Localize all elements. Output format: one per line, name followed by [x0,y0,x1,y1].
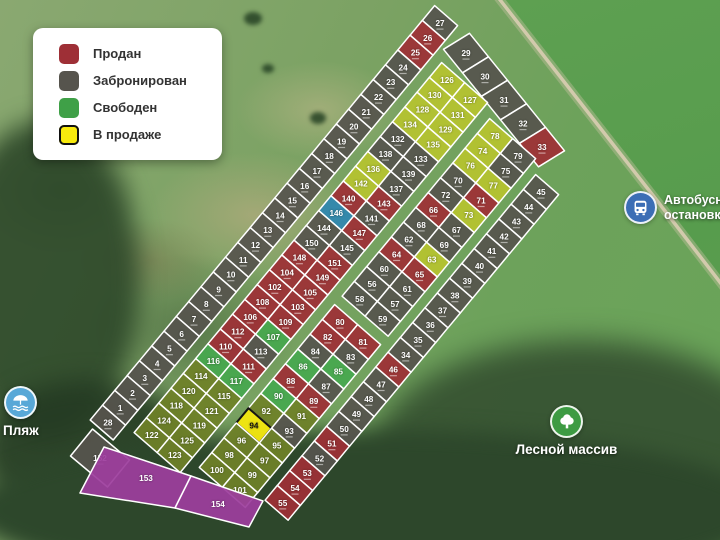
svg-text:44: 44 [524,203,534,212]
sale-swatch [59,125,79,145]
svg-text:47: 47 [377,380,387,389]
svg-text:80: 80 [335,318,345,327]
svg-text:102: 102 [268,283,282,292]
svg-text:83: 83 [346,353,356,362]
forest-label: Лесной массив [504,442,629,457]
svg-text:46: 46 [389,366,399,375]
svg-text:145: 145 [340,244,354,253]
svg-text:112: 112 [231,328,245,337]
svg-text:113: 113 [254,348,268,357]
svg-text:142: 142 [354,180,368,189]
svg-text:49: 49 [352,410,362,419]
svg-text:154: 154 [211,500,225,509]
bus-stop-marker: Автобусная остановка [624,191,720,224]
legend-label: Свободен [93,100,157,115]
svg-text:21: 21 [362,108,372,117]
svg-text:118: 118 [170,402,184,411]
svg-text:91: 91 [297,412,307,421]
beach-umbrella-icon [4,386,37,419]
svg-text:19: 19 [337,137,347,146]
svg-text:16: 16 [300,182,310,191]
svg-text:93: 93 [285,427,295,436]
svg-text:150: 150 [305,239,319,248]
svg-text:7: 7 [192,315,197,324]
svg-text:26: 26 [423,34,433,43]
svg-text:30: 30 [480,73,490,82]
svg-text:140: 140 [342,194,356,203]
svg-text:41: 41 [487,247,497,256]
svg-text:87: 87 [322,382,332,391]
svg-text:100: 100 [210,466,224,475]
svg-text:29: 29 [461,49,471,58]
svg-text:36: 36 [426,321,436,330]
svg-text:90: 90 [274,392,284,401]
svg-text:58: 58 [355,295,365,304]
svg-text:22: 22 [374,93,384,102]
legend-row-free: Свободен [59,94,222,121]
svg-text:32: 32 [518,120,528,129]
svg-text:85: 85 [334,368,344,377]
svg-text:122: 122 [145,431,159,440]
svg-text:3: 3 [143,374,148,383]
svg-text:9: 9 [216,285,221,294]
svg-text:94: 94 [249,422,259,431]
svg-text:33: 33 [537,143,547,152]
svg-text:106: 106 [243,313,257,322]
svg-text:45: 45 [536,188,546,197]
svg-text:104: 104 [280,268,294,277]
svg-text:69: 69 [440,241,450,250]
svg-text:96: 96 [237,436,247,445]
svg-text:99: 99 [248,471,258,480]
svg-text:84: 84 [311,348,321,357]
svg-text:125: 125 [180,436,194,445]
svg-text:123: 123 [168,451,182,460]
svg-text:105: 105 [303,288,317,297]
svg-text:146: 146 [329,209,343,218]
svg-text:79: 79 [513,152,523,161]
svg-text:38: 38 [450,292,460,301]
svg-text:120: 120 [182,387,196,396]
reserved-swatch [59,71,79,91]
svg-text:50: 50 [340,425,350,434]
legend-card: Продан Забронирован Свободен В продаже [33,28,222,160]
svg-text:141: 141 [365,214,379,223]
svg-text:39: 39 [463,277,473,286]
forest-marker: Лесной массив [550,405,583,457]
svg-text:134: 134 [403,120,417,129]
svg-text:132: 132 [391,135,405,144]
svg-text:86: 86 [299,362,309,371]
svg-text:14: 14 [276,211,286,220]
svg-text:147: 147 [352,229,366,238]
svg-text:138: 138 [379,150,393,159]
svg-text:42: 42 [500,232,510,241]
svg-text:40: 40 [475,262,485,271]
svg-text:51: 51 [327,440,337,449]
legend-label: Продан [93,46,141,61]
svg-text:60: 60 [380,265,390,274]
bus-icon [624,191,657,224]
svg-text:17: 17 [312,167,322,176]
aerial-plot-map: 2726252423222120191817161514131211109876… [0,0,720,540]
svg-text:55: 55 [278,499,288,508]
svg-text:110: 110 [219,342,233,351]
svg-text:76: 76 [466,162,476,171]
svg-text:43: 43 [512,218,522,227]
svg-text:64: 64 [392,250,402,259]
svg-text:54: 54 [290,484,300,493]
svg-text:5: 5 [167,345,172,354]
svg-text:149: 149 [316,274,330,283]
svg-text:74: 74 [478,147,488,156]
svg-text:62: 62 [404,236,414,245]
svg-text:148: 148 [293,254,307,263]
svg-text:119: 119 [193,422,207,431]
svg-text:136: 136 [366,165,380,174]
bus-stop-label-line2: остановка [664,208,720,223]
svg-text:72: 72 [441,191,451,200]
svg-text:108: 108 [256,298,270,307]
svg-text:59: 59 [378,315,388,324]
svg-text:144: 144 [317,224,331,233]
svg-text:77: 77 [489,182,499,191]
svg-text:35: 35 [413,336,423,345]
svg-text:98: 98 [225,451,235,460]
svg-text:57: 57 [390,300,400,309]
legend-row-sale: В продаже [59,121,222,148]
svg-text:65: 65 [415,270,425,279]
svg-text:67: 67 [452,226,462,235]
svg-text:115: 115 [217,392,231,401]
svg-text:81: 81 [358,338,368,347]
svg-text:137: 137 [389,185,403,194]
svg-text:103: 103 [291,303,305,312]
svg-text:11: 11 [239,256,248,265]
svg-text:143: 143 [377,200,391,209]
svg-text:109: 109 [279,318,293,327]
svg-text:56: 56 [367,280,377,289]
svg-text:66: 66 [429,206,439,215]
svg-text:25: 25 [411,49,421,58]
svg-text:97: 97 [260,456,270,465]
svg-text:34: 34 [401,351,411,360]
svg-text:92: 92 [262,407,272,416]
svg-text:28: 28 [103,419,113,428]
svg-text:151: 151 [328,259,342,268]
svg-text:130: 130 [428,91,442,100]
svg-text:20: 20 [349,123,359,132]
svg-text:89: 89 [309,397,319,406]
svg-text:135: 135 [426,140,440,149]
svg-text:82: 82 [323,333,333,342]
svg-text:153: 153 [139,474,153,483]
svg-text:117: 117 [230,377,244,386]
svg-text:53: 53 [303,469,313,478]
svg-text:126: 126 [440,76,454,85]
tree-icon [550,405,583,438]
bus-stop-label-line1: Автобусная [664,193,720,208]
svg-text:12: 12 [251,241,261,250]
svg-text:31: 31 [499,96,509,105]
svg-text:127: 127 [463,96,477,105]
svg-text:6: 6 [179,330,184,339]
svg-text:27: 27 [435,19,445,28]
svg-text:78: 78 [490,132,500,141]
svg-text:107: 107 [266,333,280,342]
svg-text:8: 8 [204,300,209,309]
svg-text:111: 111 [242,362,255,371]
svg-text:75: 75 [501,167,511,176]
svg-text:71: 71 [477,196,487,205]
legend-row-reserved: Забронирован [59,67,222,94]
svg-text:139: 139 [402,170,416,179]
free-swatch [59,98,79,118]
beach-label: Пляж [3,423,39,438]
svg-text:70: 70 [454,176,464,185]
svg-text:10: 10 [226,271,236,280]
svg-text:15: 15 [288,197,298,206]
sold-swatch [59,44,79,64]
svg-text:2: 2 [130,389,135,398]
svg-text:1: 1 [118,404,123,413]
svg-text:68: 68 [417,221,427,230]
svg-text:24: 24 [399,63,409,72]
svg-text:13: 13 [263,226,273,235]
svg-text:133: 133 [414,155,428,164]
svg-text:23: 23 [386,78,396,87]
svg-text:48: 48 [364,395,374,404]
svg-text:116: 116 [207,357,221,366]
svg-text:88: 88 [286,377,296,386]
svg-text:18: 18 [325,152,335,161]
svg-text:4: 4 [155,359,160,368]
svg-text:129: 129 [439,126,453,135]
svg-text:95: 95 [272,442,282,451]
svg-text:61: 61 [403,285,413,294]
legend-row-sold: Продан [59,40,222,67]
svg-text:73: 73 [464,211,474,220]
svg-text:37: 37 [438,306,448,315]
svg-text:52: 52 [315,454,325,463]
legend-label: Забронирован [93,73,187,88]
svg-text:124: 124 [157,416,171,425]
svg-text:63: 63 [427,256,437,265]
svg-text:131: 131 [451,111,465,120]
svg-text:114: 114 [194,372,208,381]
beach-marker: Пляж [4,386,39,438]
legend-label: В продаже [93,127,161,142]
svg-text:128: 128 [416,106,430,115]
svg-text:121: 121 [205,407,219,416]
